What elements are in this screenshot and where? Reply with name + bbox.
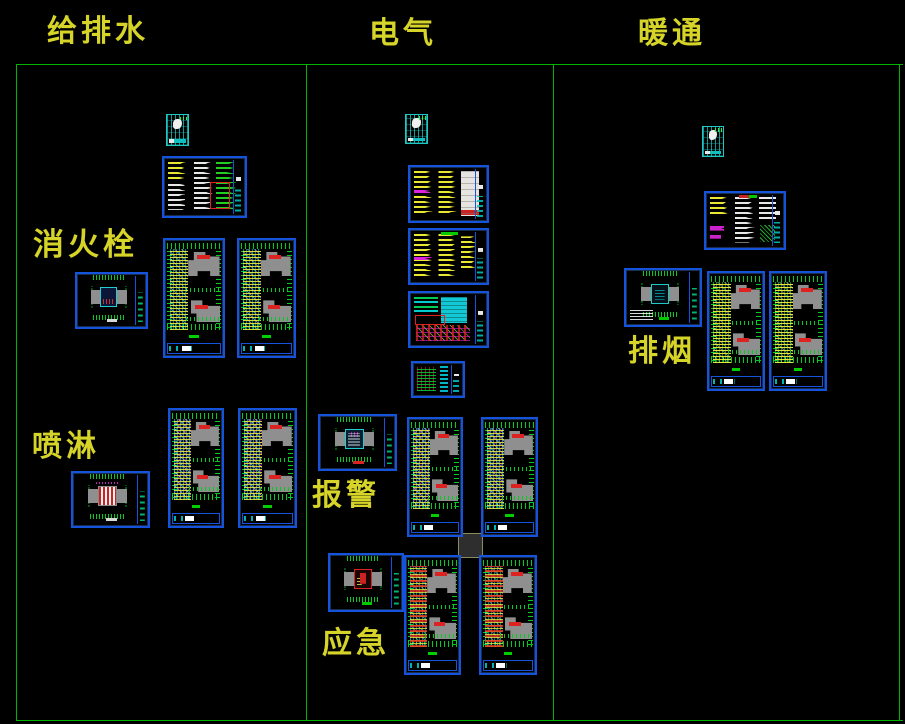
sheet-titleblock-strip bbox=[451, 365, 461, 394]
dimension-ticks-top bbox=[711, 276, 761, 282]
sheet-smoke-plan-1[interactable] bbox=[707, 271, 765, 391]
sheet-titleblock-strip bbox=[135, 276, 144, 325]
highlight-annotation bbox=[210, 182, 230, 208]
sheet-plumbing-cover[interactable] bbox=[166, 114, 189, 146]
sheet-alarm-site[interactable] bbox=[318, 414, 397, 471]
dimension-ticks-top bbox=[411, 422, 459, 428]
cover-logo-drawing bbox=[412, 118, 421, 128]
text-column-2 bbox=[438, 171, 457, 216]
dimension-ticks-top bbox=[485, 422, 534, 428]
red-label-lower bbox=[509, 622, 521, 626]
red-label-lower bbox=[799, 338, 811, 342]
red-label-lower bbox=[195, 305, 208, 309]
sheet-titleblock-strip bbox=[689, 272, 698, 323]
frame-top-line bbox=[16, 64, 903, 65]
site-block-right bbox=[364, 432, 374, 446]
red-label-lower bbox=[737, 338, 749, 342]
section-label-emergency: 应急 bbox=[322, 628, 390, 660]
sheet-titleblock bbox=[483, 660, 533, 671]
sheet-titleblock bbox=[241, 343, 292, 354]
sheet-titleblock bbox=[167, 343, 221, 354]
drawing-caption bbox=[362, 602, 372, 605]
red-label-upper bbox=[435, 572, 447, 576]
cover-marks bbox=[419, 116, 426, 119]
pipe-annotations bbox=[410, 566, 427, 647]
red-label-lower bbox=[436, 484, 447, 488]
red-label-upper bbox=[199, 425, 210, 429]
drawing-caption bbox=[107, 319, 117, 322]
text-column-1 bbox=[168, 162, 188, 210]
cover-marks bbox=[715, 128, 722, 131]
sheet-hydrant-plan-2[interactable] bbox=[237, 238, 296, 358]
site-core-drawing bbox=[100, 287, 117, 307]
pipe-annotations bbox=[413, 428, 430, 509]
highlight-annotation bbox=[415, 315, 445, 325]
cover-logo-drawing bbox=[173, 119, 182, 129]
text-column-1 bbox=[414, 297, 439, 315]
drawing-caption bbox=[263, 505, 272, 508]
site-plan-drawing bbox=[344, 563, 381, 595]
drawing-caption bbox=[353, 461, 364, 464]
pipe-annotations bbox=[243, 249, 261, 330]
red-label-lower bbox=[268, 305, 280, 309]
site-core-drawing bbox=[345, 429, 364, 449]
pipe-annotations bbox=[485, 566, 502, 647]
red-label-upper bbox=[269, 255, 281, 259]
sheet-titleblock-strip bbox=[772, 195, 782, 246]
drawing-caption bbox=[505, 514, 513, 517]
red-label-upper bbox=[512, 434, 524, 438]
site-block-left bbox=[335, 432, 345, 446]
pipe-annotations bbox=[174, 419, 191, 500]
sheet-titleblock bbox=[485, 522, 534, 533]
sheet-hydrant-site[interactable] bbox=[75, 272, 148, 329]
sheet-smoke-site[interactable] bbox=[624, 268, 702, 327]
drawing-caption bbox=[262, 335, 271, 338]
site-block-left bbox=[641, 287, 651, 302]
column-header-plumbing: 给排水 bbox=[47, 16, 149, 48]
pipe-annotations bbox=[244, 419, 262, 500]
text-column-1 bbox=[414, 171, 434, 216]
site-plan-drawing bbox=[335, 424, 374, 455]
sheet-electrical-cover[interactable] bbox=[405, 114, 428, 144]
sheet-hvac-spec[interactable] bbox=[704, 191, 786, 250]
column-header-hvac: 暖通 bbox=[638, 18, 706, 50]
column-border-right bbox=[899, 64, 900, 721]
sheet-titleblock-strip bbox=[475, 169, 485, 219]
dimension-ticks-top bbox=[172, 413, 220, 419]
sheet-emergency-plan-2[interactable] bbox=[479, 555, 537, 675]
drawing-caption bbox=[504, 652, 513, 655]
sheet-titleblock bbox=[411, 522, 459, 533]
red-label-upper bbox=[801, 288, 813, 292]
red-label-upper bbox=[511, 572, 523, 576]
text-column-1 bbox=[710, 197, 730, 243]
drawing-caption bbox=[189, 335, 198, 338]
column-divider-1 bbox=[306, 64, 307, 721]
red-label-upper bbox=[438, 434, 449, 438]
drawing-caption bbox=[431, 514, 439, 517]
sheet-titleblock-strip bbox=[384, 418, 393, 467]
red-label-lower bbox=[197, 475, 208, 479]
sheet-electrical-spec-2[interactable] bbox=[408, 228, 489, 285]
dimension-ticks-top bbox=[483, 560, 533, 566]
sheet-titleblock bbox=[242, 513, 293, 524]
site-plan-drawing bbox=[88, 481, 127, 512]
drawing-caption bbox=[794, 368, 803, 371]
site-block-right bbox=[669, 287, 679, 302]
text-column-2 bbox=[735, 197, 756, 243]
section-label-smoke: 排烟 bbox=[628, 336, 696, 368]
cover-marks bbox=[180, 117, 187, 121]
cad-canvas[interactable]: 给排水 电气 暖通 消火栓 喷淋 报警 应急 排烟 bbox=[0, 0, 905, 724]
text-column-1 bbox=[417, 367, 436, 391]
notes-text-block bbox=[630, 310, 652, 320]
drawing-caption bbox=[732, 368, 741, 371]
site-block-left bbox=[88, 489, 98, 503]
sheet-titleblock bbox=[172, 513, 220, 524]
site-core-drawing bbox=[98, 486, 117, 506]
sheet-electrical-detail[interactable] bbox=[408, 291, 489, 348]
sheet-emergency-site[interactable] bbox=[328, 553, 404, 612]
sheet-titleblock-strip bbox=[475, 295, 485, 344]
sheet-titleblock-strip bbox=[391, 557, 400, 608]
site-core-drawing bbox=[651, 284, 669, 304]
text-column-1 bbox=[414, 234, 434, 278]
sheet-plumbing-spec[interactable] bbox=[162, 156, 247, 218]
drawing-caption bbox=[192, 505, 200, 508]
cover-titlebar bbox=[169, 139, 187, 143]
sheet-alarm-plan-1[interactable] bbox=[407, 417, 463, 537]
pipe-annotations bbox=[775, 282, 792, 363]
sheet-titleblock-strip bbox=[233, 160, 243, 214]
column-header-electrical: 电气 bbox=[369, 18, 437, 50]
red-label-lower bbox=[511, 484, 523, 488]
sheet-titleblock-strip bbox=[475, 232, 485, 281]
column-divider-2 bbox=[553, 64, 554, 721]
frame-bottom-line bbox=[16, 720, 903, 721]
text-column-3 bbox=[416, 325, 470, 341]
site-block-right bbox=[117, 290, 126, 304]
dimension-ticks-top bbox=[167, 243, 220, 249]
site-core-drawing bbox=[354, 569, 372, 589]
sheet-titleblock bbox=[773, 376, 823, 387]
highlight-annotation bbox=[739, 195, 758, 198]
pipe-annotations bbox=[713, 282, 730, 363]
cover-titlebar bbox=[705, 151, 722, 154]
sheet-titleblock bbox=[408, 660, 457, 671]
dimension-ticks-top bbox=[408, 560, 457, 566]
sheet-hvac-cover[interactable] bbox=[702, 126, 724, 157]
drawing-caption bbox=[428, 652, 436, 655]
site-block-left bbox=[91, 290, 100, 304]
sheet-emergency-plan-1[interactable] bbox=[404, 555, 461, 675]
sheet-sprinkler-site[interactable] bbox=[71, 471, 150, 528]
red-label-lower bbox=[269, 475, 281, 479]
text-column-2 bbox=[440, 366, 448, 392]
pipe-annotations bbox=[170, 249, 189, 330]
site-block-right bbox=[117, 489, 127, 503]
site-block-right bbox=[372, 572, 382, 587]
site-plan-drawing bbox=[641, 278, 679, 310]
sheet-sprinkler-plan-2[interactable] bbox=[238, 408, 297, 528]
section-label-sprinkler: 喷淋 bbox=[32, 431, 100, 463]
sheet-titleblock bbox=[711, 376, 761, 387]
sheet-alarm-plan-2[interactable] bbox=[481, 417, 538, 537]
red-label-upper bbox=[197, 255, 210, 259]
cover-titlebar bbox=[408, 138, 426, 141]
sheet-hydrant-plan-1[interactable] bbox=[163, 238, 225, 358]
site-block-left bbox=[344, 572, 354, 587]
sheet-electrical-spec-1[interactable] bbox=[408, 165, 489, 223]
sheet-titleblock-strip bbox=[137, 475, 146, 524]
sheet-smoke-plan-2[interactable] bbox=[769, 271, 827, 391]
dimension-ticks-top bbox=[242, 413, 293, 419]
red-label-lower bbox=[434, 622, 446, 626]
drawing-caption bbox=[659, 317, 669, 320]
red-label-upper bbox=[739, 288, 751, 292]
sheet-sprinkler-plan-1[interactable] bbox=[168, 408, 224, 528]
section-label-alarm: 报警 bbox=[312, 480, 380, 512]
dimension-ticks-top bbox=[773, 276, 823, 282]
text-column-2 bbox=[438, 234, 457, 278]
section-label-hydrant: 消火栓 bbox=[33, 229, 138, 261]
red-label-upper bbox=[270, 425, 282, 429]
drawing-caption bbox=[106, 518, 117, 521]
column-border-left bbox=[16, 64, 17, 721]
cover-logo-drawing bbox=[709, 130, 717, 140]
dimension-ticks-top bbox=[241, 243, 292, 249]
sheet-electrical-detail-sm[interactable] bbox=[411, 361, 465, 398]
pipe-annotations bbox=[487, 428, 504, 509]
site-plan-drawing bbox=[91, 282, 127, 313]
highlight-annotation bbox=[441, 232, 458, 235]
